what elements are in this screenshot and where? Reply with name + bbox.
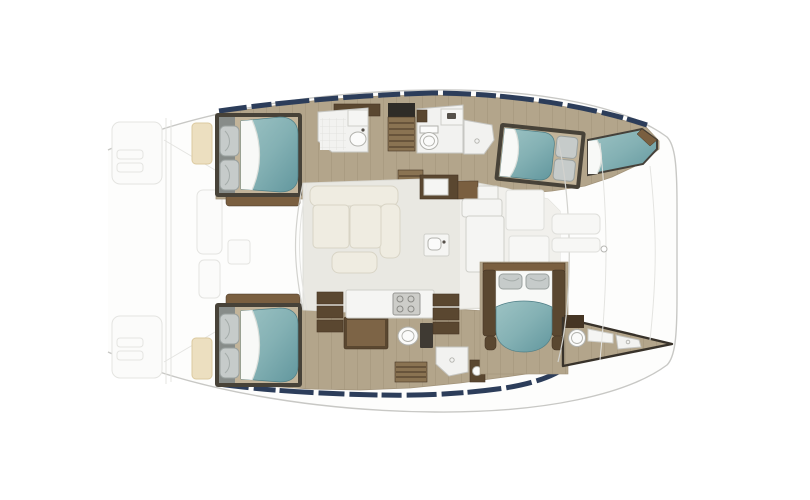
island-counter	[346, 290, 434, 318]
bow-seat-step	[117, 351, 143, 360]
counter	[462, 199, 502, 217]
foredeck-sunpad	[197, 190, 222, 254]
sofa-back	[310, 186, 398, 206]
drawer-stack-right	[433, 294, 459, 334]
round-sink	[569, 330, 586, 347]
galley-locker	[458, 181, 478, 199]
forward-cabin-port	[215, 294, 302, 387]
drawer	[317, 306, 343, 318]
toilet-cistern	[420, 323, 433, 348]
bed-foot-left	[485, 336, 496, 350]
galley-sink	[428, 238, 441, 250]
desk-top	[347, 320, 385, 346]
stove	[393, 293, 420, 315]
foredeck-cushion-starboard	[192, 123, 212, 164]
sink-counter	[348, 110, 368, 126]
drawer	[317, 320, 343, 332]
aft-head-starboard	[417, 105, 463, 153]
faucet	[361, 128, 364, 131]
coffee-table	[332, 252, 377, 273]
forward-cabin-starboard	[215, 113, 302, 206]
owner-cabin	[480, 262, 568, 374]
sofa-side-back	[380, 204, 400, 258]
sofa-seat	[350, 205, 381, 248]
catamaran-floor-plan	[0, 0, 810, 500]
drawer	[433, 294, 459, 306]
drawer	[433, 322, 459, 334]
cockpit-bench	[552, 238, 600, 252]
floor-plan-canvas	[0, 0, 810, 500]
drawer-stack-left	[317, 292, 343, 332]
foredeck-sunpad	[199, 260, 220, 298]
sink	[350, 132, 366, 146]
door-handle	[601, 246, 607, 252]
drawer	[433, 308, 459, 320]
bow-seat-step	[117, 338, 143, 347]
companionway-starboard	[388, 103, 415, 151]
toilet-tank	[420, 126, 438, 133]
bow-seat-step	[117, 150, 143, 159]
toilet	[420, 133, 438, 150]
fridge-unit	[506, 190, 544, 230]
cabinet-top	[424, 179, 448, 195]
galley-faucet	[442, 240, 445, 243]
windlass-locker	[228, 240, 250, 264]
locker	[417, 110, 427, 122]
tap	[447, 113, 456, 119]
bed-rail-left	[483, 270, 496, 336]
cockpit-bench	[552, 214, 600, 234]
pillow	[526, 274, 549, 289]
bow-seat-step	[117, 163, 143, 172]
shower-tile	[320, 118, 346, 150]
aft-cabin-starboard	[494, 123, 586, 190]
pillow	[555, 136, 578, 159]
pillow	[499, 274, 522, 289]
companionway-hatch	[388, 103, 415, 117]
bed-mattress	[496, 301, 552, 352]
vanity	[564, 315, 584, 328]
stairs	[388, 117, 415, 151]
drawer	[317, 292, 343, 304]
sofa-seat	[313, 205, 349, 248]
foredeck-cushion-port	[192, 338, 212, 379]
toilet	[398, 327, 418, 345]
